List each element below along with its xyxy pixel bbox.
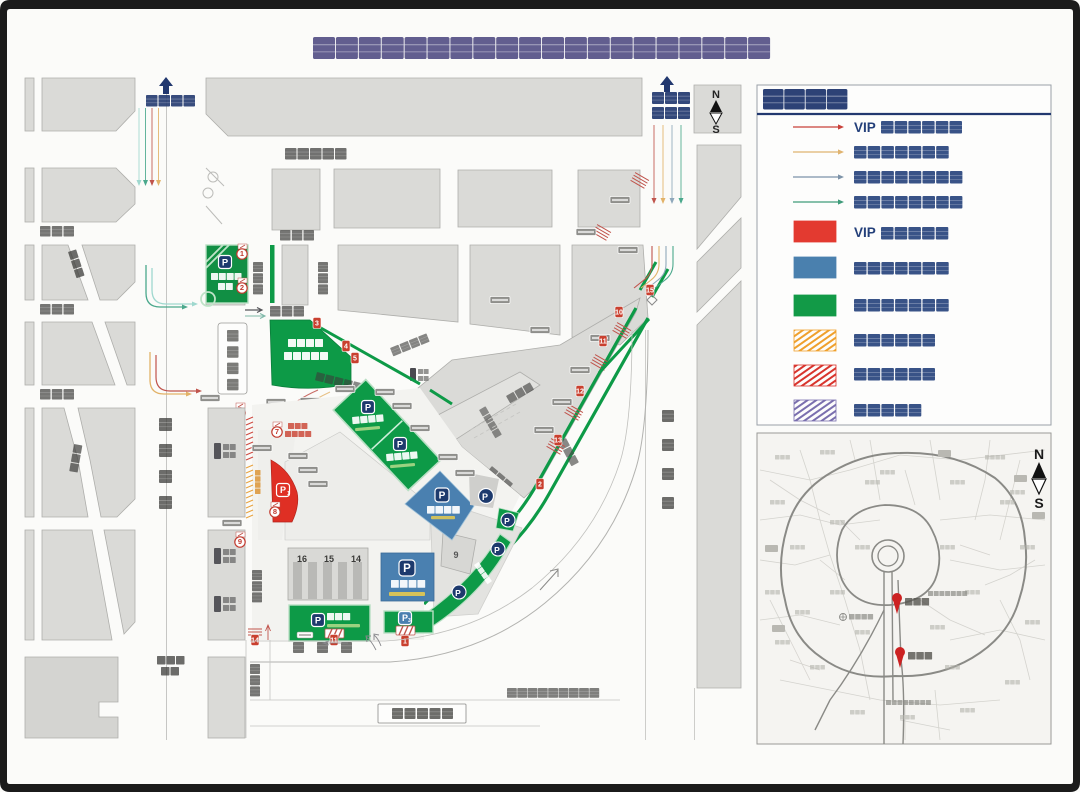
svg-text:11: 11 [599,339,607,346]
svg-text:10: 10 [615,310,623,317]
svg-text:2: 2 [538,482,542,489]
svg-text:VIP: VIP [854,120,876,135]
svg-text:16: 16 [297,554,307,564]
svg-text:P: P [439,491,446,502]
svg-text:7: 7 [275,427,279,436]
svg-text:12: 12 [576,389,584,396]
svg-text:4: 4 [344,344,348,351]
svg-text:3: 3 [408,618,411,624]
svg-text:P: P [397,438,403,449]
svg-text:P: P [365,401,371,412]
svg-text:8: 8 [273,507,277,516]
svg-text:P: P [455,588,461,598]
svg-text:P: P [222,256,228,267]
svg-text:15: 15 [646,288,654,295]
svg-text:VIP: VIP [854,225,876,240]
svg-text:1: 1 [240,249,244,258]
svg-text:13: 13 [554,438,562,445]
svg-text:9: 9 [238,537,242,546]
svg-text:P: P [403,563,411,575]
svg-text:3: 3 [315,321,319,328]
svg-text:S: S [712,124,719,136]
svg-text:2: 2 [240,283,244,292]
svg-text:P: P [315,614,321,625]
svg-text:5: 5 [353,356,357,363]
svg-text:P: P [280,485,286,495]
svg-text:P: P [494,545,500,555]
svg-text:9: 9 [453,550,458,560]
svg-text:P: P [482,492,488,502]
svg-text:15: 15 [324,554,334,564]
svg-text:P: P [504,516,510,526]
svg-text:N: N [712,89,720,101]
svg-text:1: 1 [287,491,290,497]
svg-text:S: S [1034,495,1043,511]
svg-text:N: N [1034,446,1044,462]
svg-text:14: 14 [351,554,361,564]
